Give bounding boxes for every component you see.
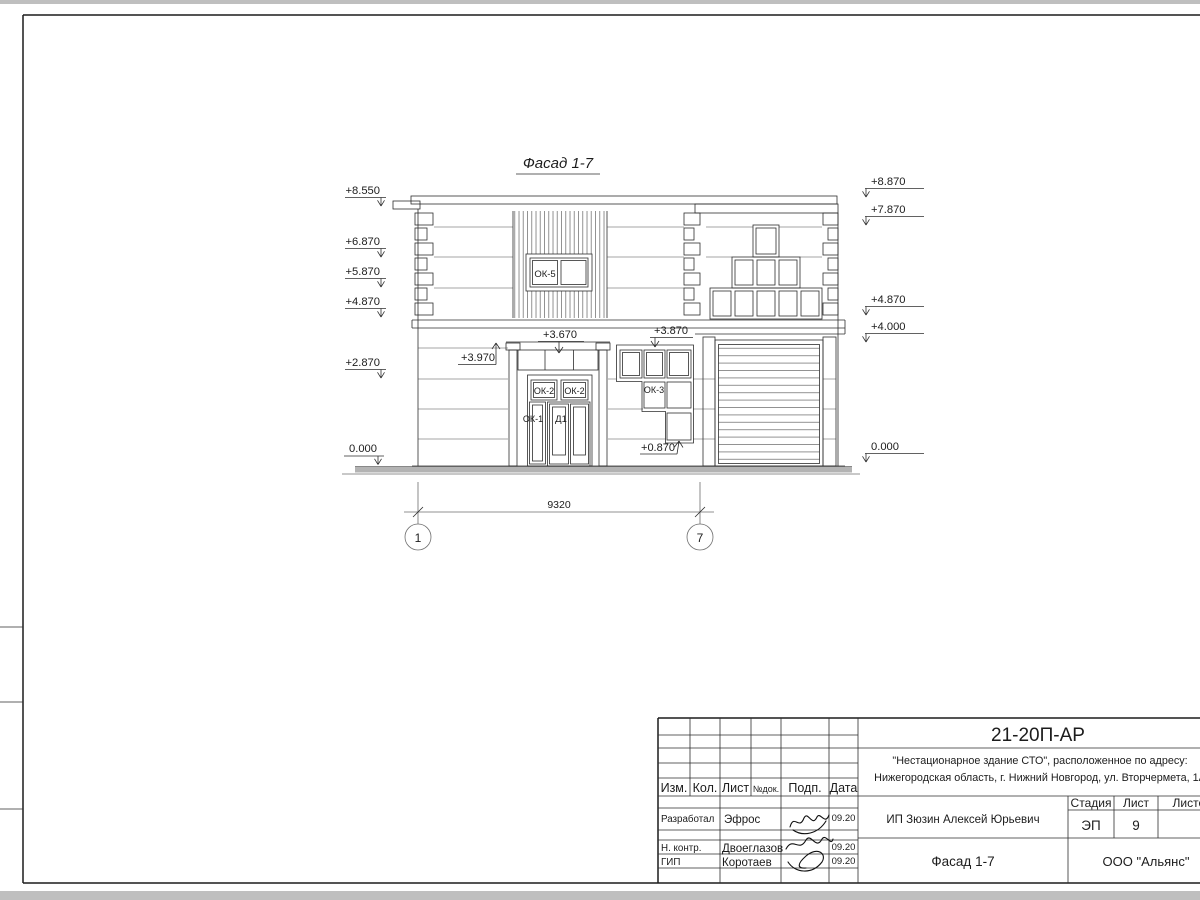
ok3-window-group: ОК-3 xyxy=(617,345,694,443)
row-date: 09.20 xyxy=(832,842,856,853)
row-role: Разработал xyxy=(661,814,715,825)
garage-pilaster-right xyxy=(823,337,836,466)
signature xyxy=(790,815,829,834)
garage-pilaster-left xyxy=(703,337,715,466)
ok1-label: ОК-1 xyxy=(523,414,543,424)
elev-mark: +5.870 xyxy=(345,266,380,278)
elev-mark: 0.000 xyxy=(349,443,377,455)
elev-mark-transom: +3.670 xyxy=(543,329,577,341)
doc-number: 21-20П-АР xyxy=(991,725,1085,746)
ok2-window-left: ОК-2 xyxy=(531,380,557,400)
interfloor-band xyxy=(412,320,845,334)
transom-band xyxy=(518,350,598,370)
row-role: ГИП xyxy=(661,857,680,868)
second-floor-right-section xyxy=(684,213,838,319)
stage-header: Стадия xyxy=(1071,796,1112,810)
ok2-window-right: ОК-2 xyxy=(561,380,588,400)
ok5-window: ОК-5 xyxy=(526,254,592,291)
title-block: Изм. Кол. Лист №док. Подп. Дата Разработ… xyxy=(658,718,1200,883)
sheet-number: 9 xyxy=(1132,818,1140,833)
door-d1: Д1 xyxy=(548,402,591,466)
row-name: Эфрос xyxy=(724,814,761,826)
ok2-left-label: ОК-2 xyxy=(534,386,554,396)
ok5-label: ОК-5 xyxy=(534,269,555,280)
col-izm: Изм. xyxy=(661,781,688,795)
col-doc: №док. xyxy=(753,784,779,794)
elev-mark-ok3-top: +3.870 xyxy=(654,325,688,337)
row-name: Коротаев xyxy=(722,857,772,869)
stepped-window-tier1 xyxy=(753,225,779,257)
col-date: Дата xyxy=(830,781,858,795)
elev-mark: +4.000 xyxy=(871,321,906,333)
pilaster-cap-right xyxy=(596,343,610,350)
stepped-window-group xyxy=(710,225,822,319)
row-name: Двоеглазов xyxy=(722,843,783,855)
dimension-and-axes: 9320 1 7 xyxy=(404,482,714,550)
sheets-header: Листов xyxy=(1173,796,1200,810)
project-name-line1: "Нестационарное здание СТО", расположенн… xyxy=(892,755,1187,767)
col-sign: Подп. xyxy=(788,781,821,795)
col-list: Лист xyxy=(722,781,749,795)
sheet-frame xyxy=(0,15,1200,883)
elev-mark: +4.870 xyxy=(345,296,380,308)
entrance: ОК-2 ОК-2 ОК-1 Д1 xyxy=(506,342,610,466)
elev-mark: +6.870 xyxy=(345,236,380,248)
sheet-header: Лист xyxy=(1123,796,1150,810)
axis-label-1: 1 xyxy=(415,531,422,545)
row-date: 09.20 xyxy=(832,856,856,867)
row-date: 09.20 xyxy=(832,813,856,824)
facade-drawing: Фасад 1-7 xyxy=(342,155,924,550)
pilaster-cap-left xyxy=(506,343,520,350)
elev-mark-ok3-bottom: +0.870 xyxy=(641,442,675,454)
col-kol: Кол. xyxy=(693,781,718,795)
elev-mark: +8.870 xyxy=(871,176,906,188)
binding-cells xyxy=(0,627,23,809)
elev-mark: +2.870 xyxy=(345,357,380,369)
garage-roll-door xyxy=(719,345,820,464)
garage xyxy=(703,337,836,466)
pilaster-right xyxy=(599,350,607,466)
client-name: ИП Зюзин Алексей Юрьевич xyxy=(886,814,1039,826)
pilaster-left xyxy=(509,350,517,466)
stepped-window-tier3 xyxy=(710,288,822,319)
elev-mark-pilaster: +3.970 xyxy=(461,352,495,364)
drawing-sheet: Фасад 1-7 xyxy=(0,0,1200,900)
ok2-right-label: ОК-2 xyxy=(564,386,584,396)
elev-mark: +8.550 xyxy=(345,185,380,197)
ok3-label: ОК-3 xyxy=(644,385,664,395)
organization-name: ООО "Альянс" xyxy=(1103,854,1190,869)
stepped-window-tier2 xyxy=(732,257,800,288)
elevation-marks-right: +8.870 +7.870 +4.870 +4.000 0.000 xyxy=(863,176,925,462)
dimension-value: 9320 xyxy=(547,499,571,511)
quoins-right-section-left xyxy=(684,213,700,315)
stage-value: ЭП xyxy=(1081,818,1100,833)
parapet xyxy=(393,196,838,213)
d1-label: Д1 xyxy=(555,414,567,425)
quoins-right-section-right xyxy=(823,213,838,315)
elev-mark: +7.870 xyxy=(871,204,906,216)
axis-label-7: 7 xyxy=(697,531,704,545)
sheet-title: Фасад 1-7 xyxy=(931,854,994,869)
slat-cladding: ОК-5 xyxy=(513,211,607,318)
elev-mark: 0.000 xyxy=(871,441,899,453)
page-top-edge xyxy=(0,0,1200,4)
title-block-rows: Разработал Эфрос 09.20 Н. контр. Двоегла… xyxy=(661,813,855,871)
facade-title: Фасад 1-7 xyxy=(523,155,594,172)
ok1-sidelight: ОК-1 xyxy=(523,402,546,464)
elevation-marks-left: +8.550 +6.870 +5.870 +4.870 +2.870 0.000 xyxy=(344,185,386,465)
elev-mark: +4.870 xyxy=(871,294,906,306)
second-floor-left-wall xyxy=(415,213,513,315)
page-bottom-edge xyxy=(0,891,1200,900)
ground-line xyxy=(342,466,860,474)
project-name-line2: Нижегородская область, г. Нижний Новгоро… xyxy=(874,772,1200,784)
row-role: Н. контр. xyxy=(661,843,701,854)
second-floor-middle-wall xyxy=(607,227,684,288)
